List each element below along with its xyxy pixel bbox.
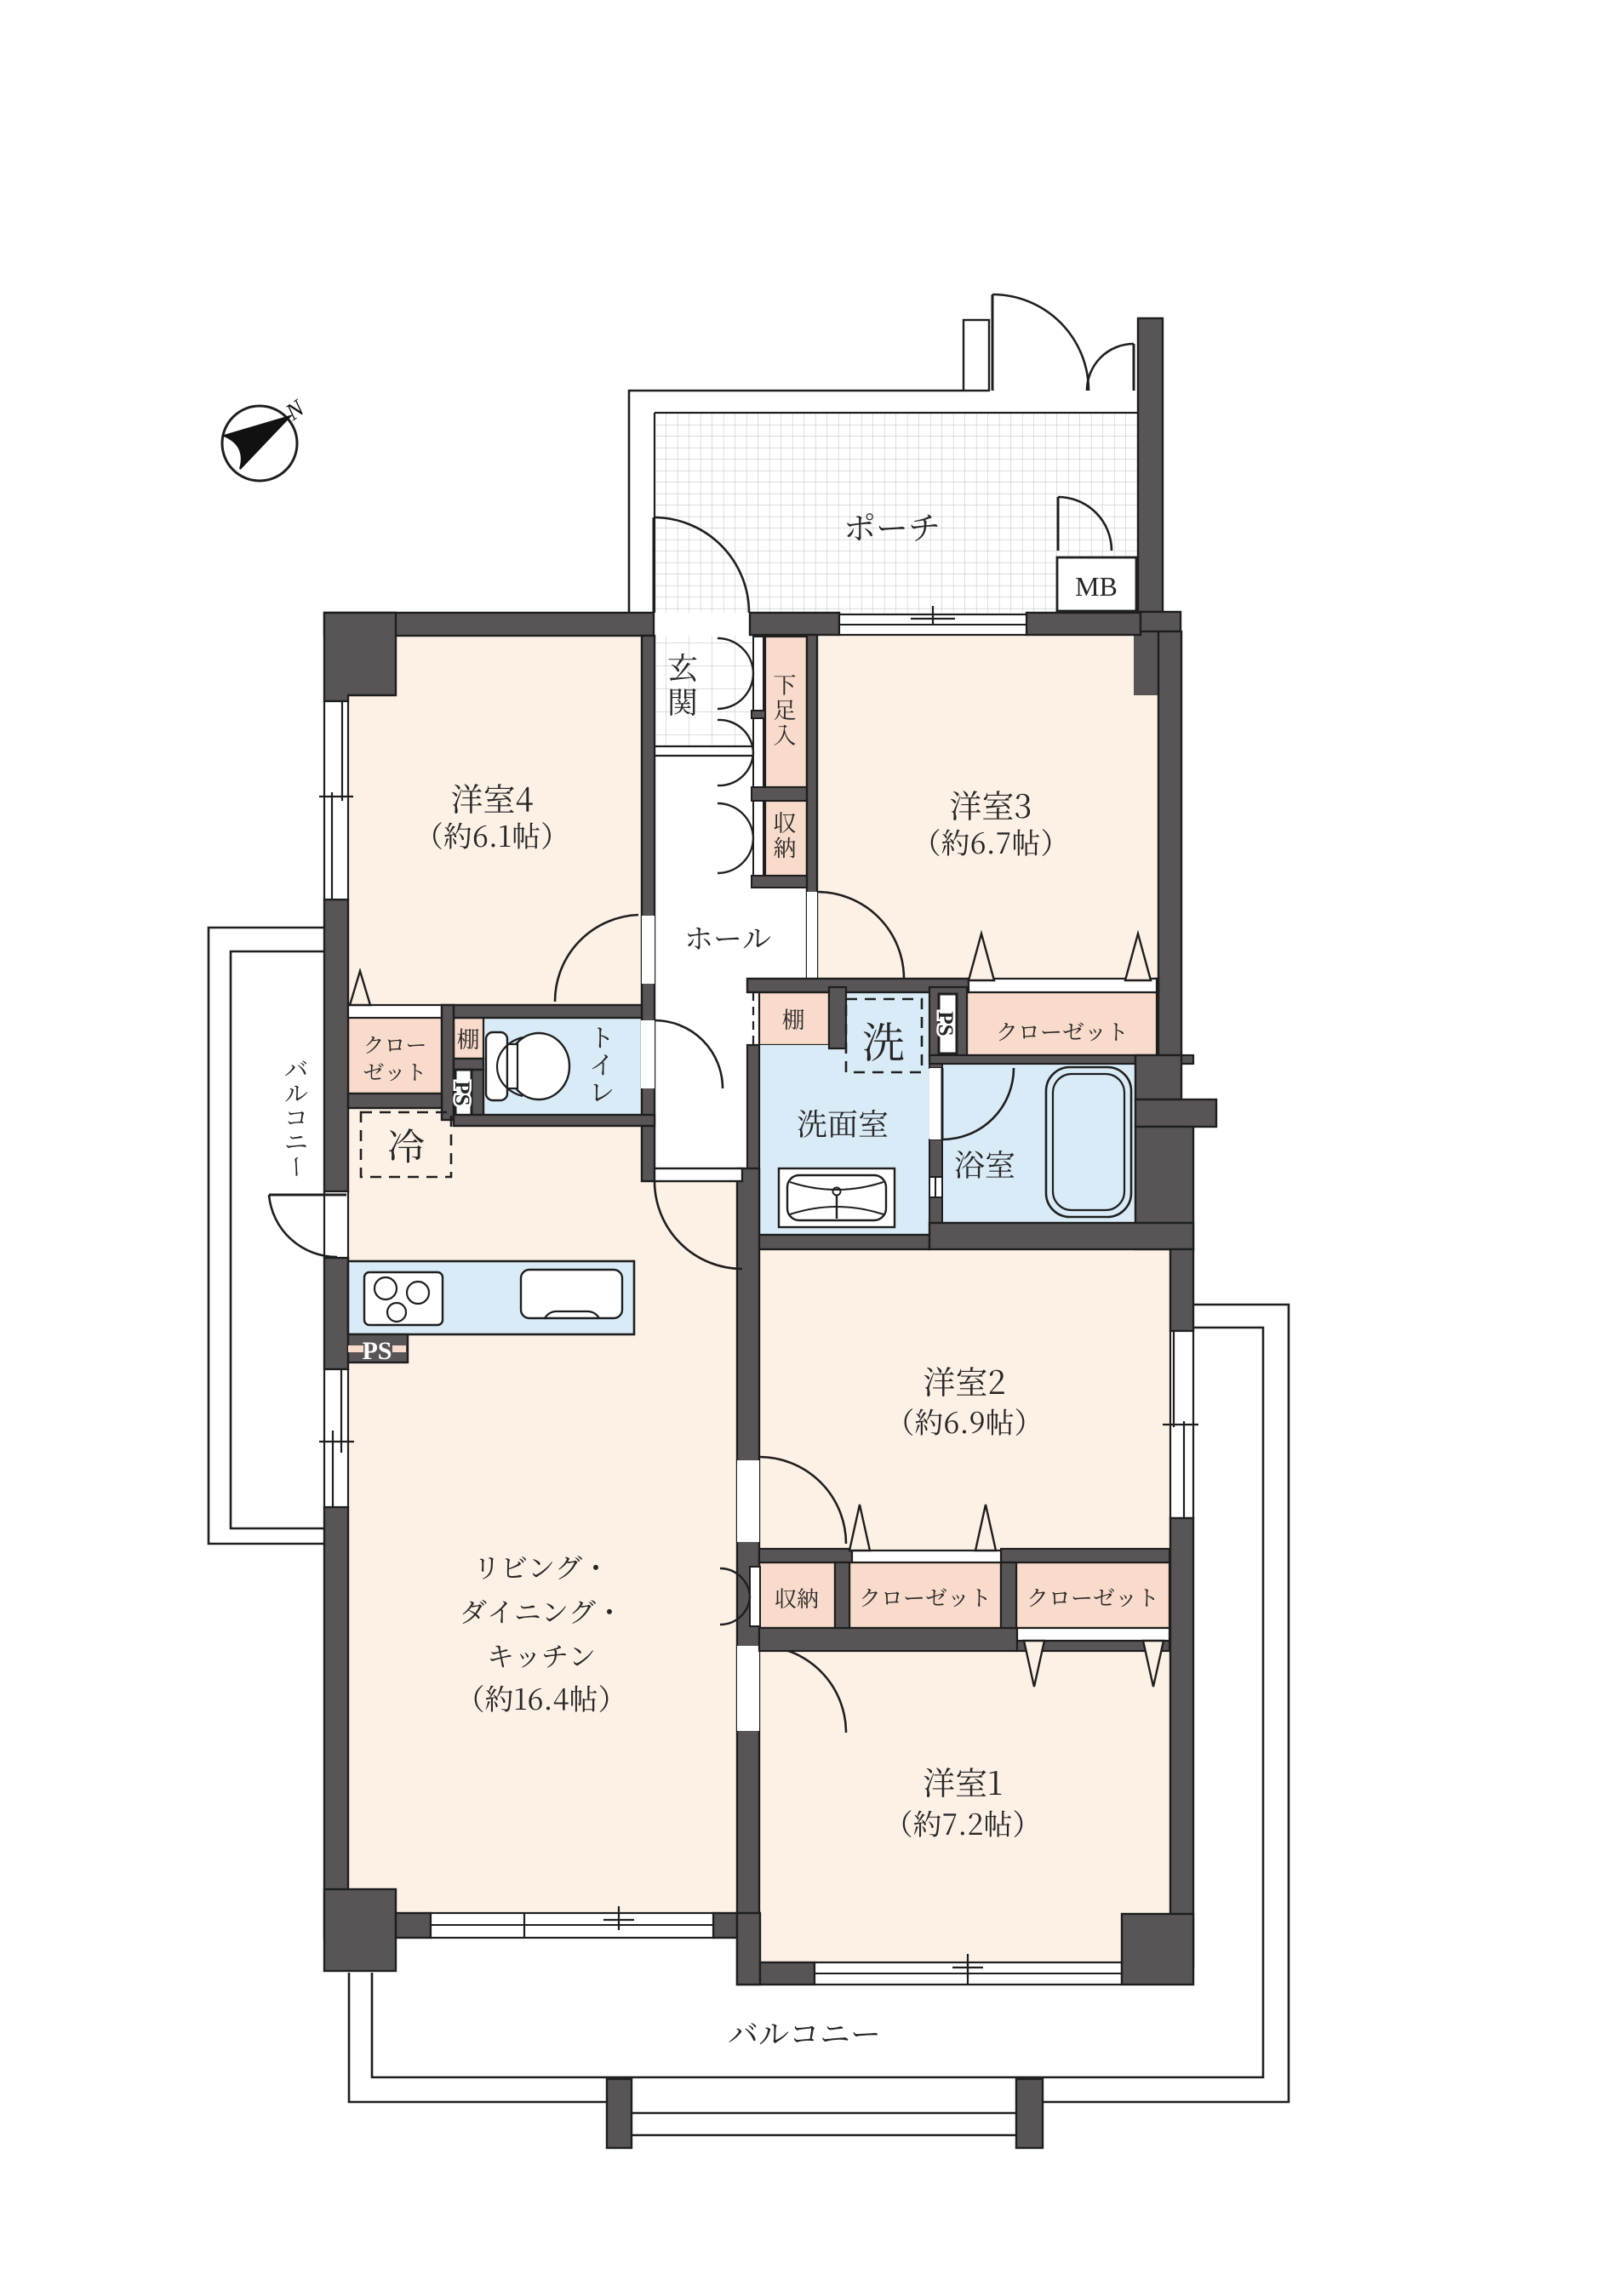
svg-text:PS: PS <box>362 1337 392 1365</box>
svg-text:MB: MB <box>1075 571 1118 602</box>
svg-text:PS: PS <box>934 1011 957 1036</box>
svg-text:PS: PS <box>450 1081 473 1105</box>
